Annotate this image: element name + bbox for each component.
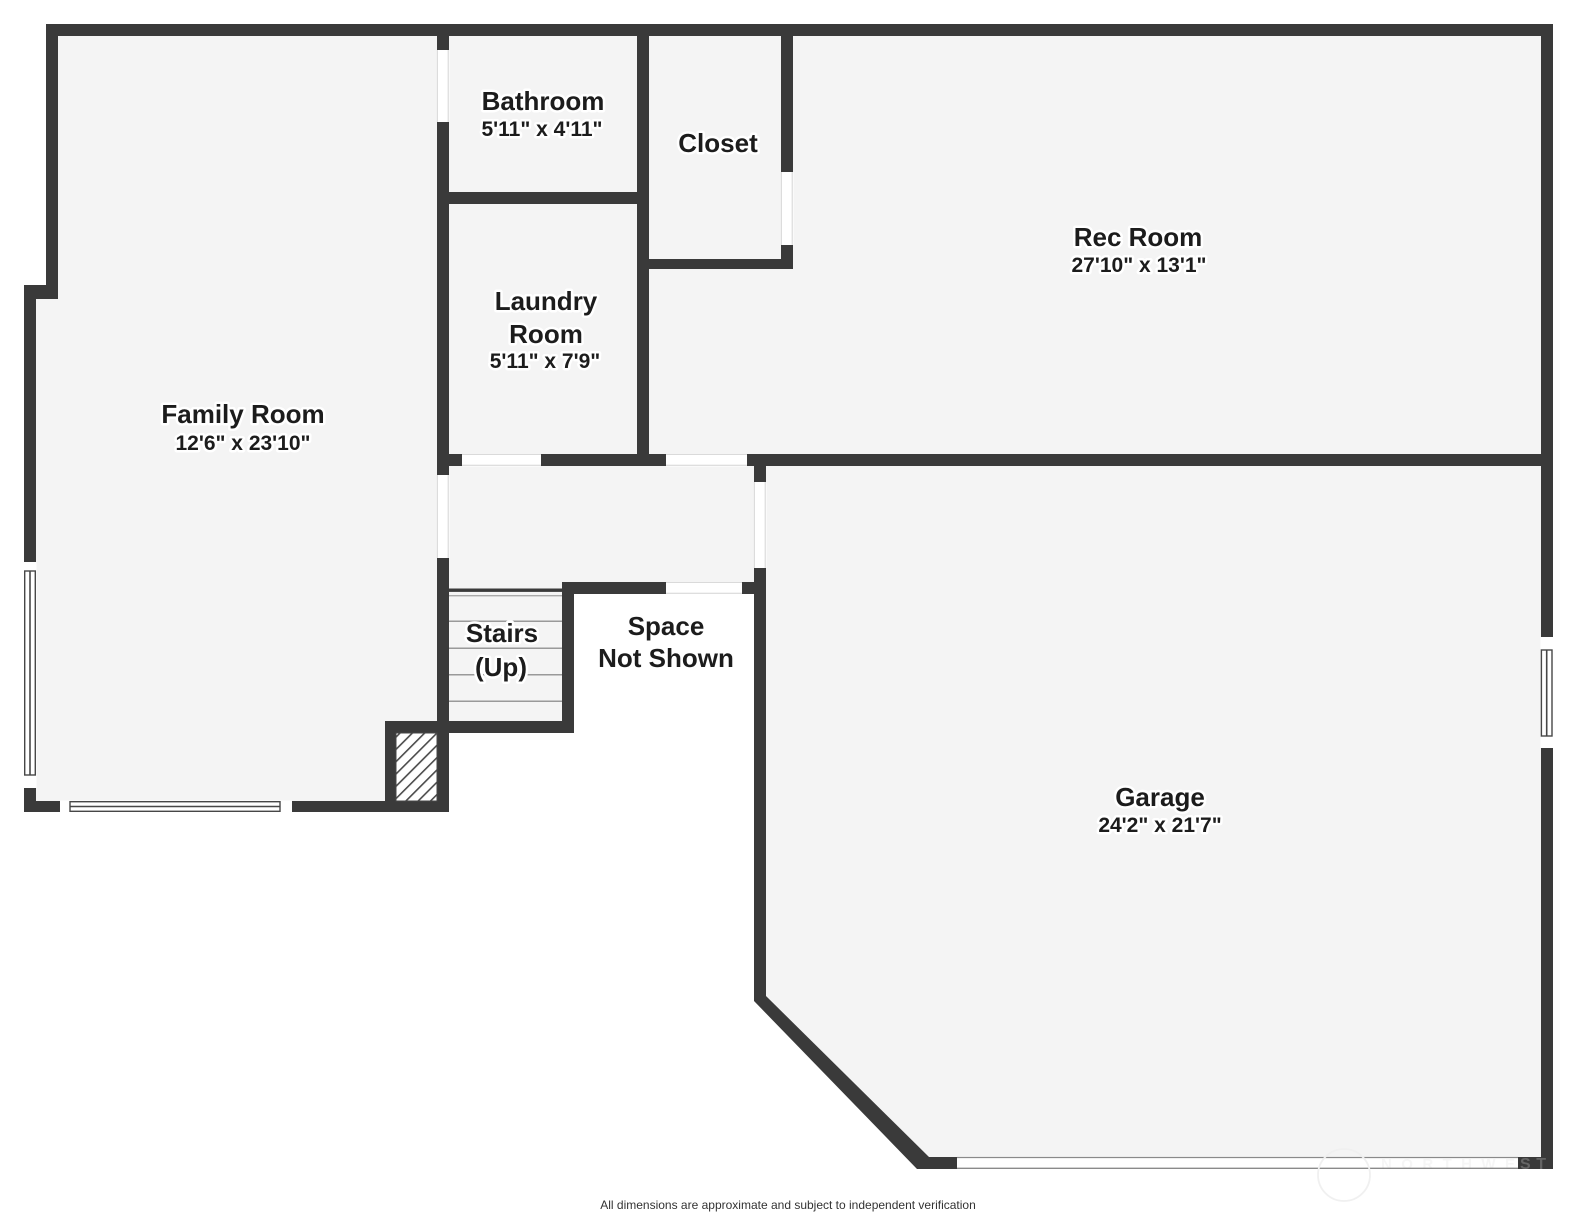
svg-text:12'6" x 23'10": 12'6" x 23'10"	[175, 432, 310, 455]
svg-text:24'2" x 21'7": 24'2" x 21'7"	[1098, 814, 1221, 837]
svg-text:Family Room: Family Room	[161, 399, 324, 429]
svg-text:Room: Room	[509, 319, 583, 349]
svg-text:Closet: Closet	[678, 128, 758, 158]
svg-text:Not Shown: Not Shown	[598, 643, 734, 673]
svg-text:(Up): (Up)	[475, 652, 527, 682]
svg-text:5'11" x 4'11": 5'11" x 4'11"	[481, 118, 602, 141]
svg-text:Laundry: Laundry	[495, 286, 598, 316]
svg-text:5'11" x 7'9": 5'11" x 7'9"	[490, 350, 601, 373]
svg-text:Space: Space	[628, 611, 705, 641]
svg-text:All dimensions are approximate: All dimensions are approximate and subje…	[600, 1198, 976, 1212]
svg-text:NORTHWE: NORTHWE	[1381, 1156, 1515, 1173]
svg-text:Rec Room: Rec Room	[1074, 222, 1203, 252]
svg-text:Garage: Garage	[1115, 782, 1205, 812]
svg-text:Stairs: Stairs	[466, 618, 538, 648]
svg-text:Bathroom: Bathroom	[482, 86, 605, 116]
svg-text:27'10" x 13'1": 27'10" x 13'1"	[1071, 254, 1206, 277]
